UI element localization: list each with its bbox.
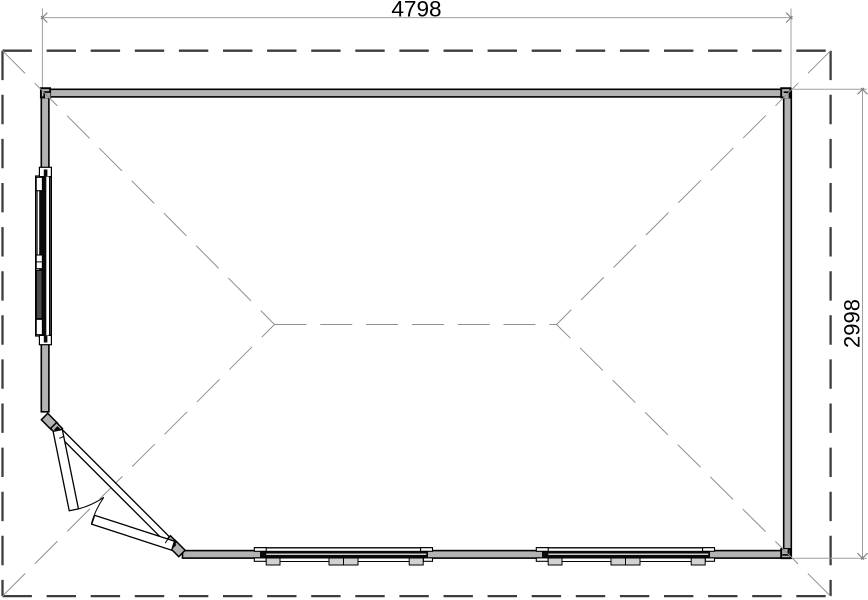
svg-text:4798: 4798 bbox=[391, 0, 441, 22]
svg-text:2998: 2998 bbox=[840, 299, 865, 348]
